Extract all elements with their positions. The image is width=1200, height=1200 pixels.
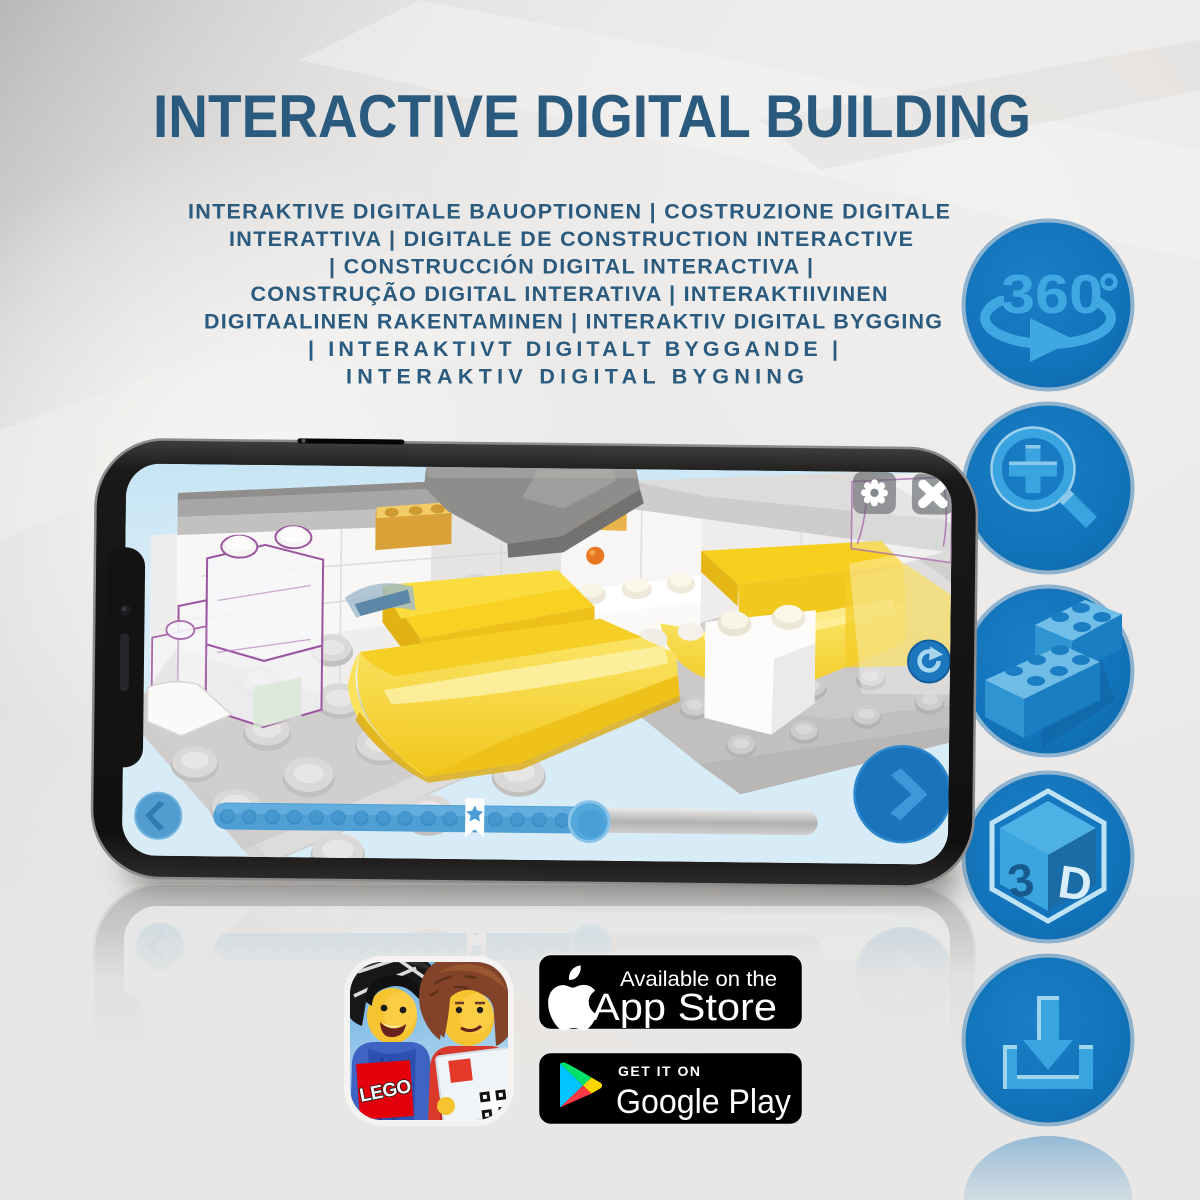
svg-text:| CONSTRUCCIÓN DIGITAL INTERAC: | CONSTRUCCIÓN DIGITAL INTERACTIVA | xyxy=(329,254,813,279)
svg-text:Google Play: Google Play xyxy=(616,1083,791,1121)
svg-text:INTERACTIVE DIGITAL BUILDING: INTERACTIVE DIGITAL BUILDING xyxy=(153,83,1031,150)
svg-text:DIGITAALINEN RAKENTAMINEN | IN: DIGITAALINEN RAKENTAMINEN | INTERAKTIV D… xyxy=(204,310,942,334)
svg-text:CONSTRUÇÃO DIGITAL INTERATIVA: CONSTRUÇÃO DIGITAL INTERATIVA | INTERAKT… xyxy=(251,281,888,306)
svg-text:INTERAKTIVE DIGITALE BAUOPTION: INTERAKTIVE DIGITALE BAUOPTIONEN | COSTR… xyxy=(188,200,950,224)
svg-text:GET IT ON: GET IT ON xyxy=(618,1063,702,1079)
svg-text:App Store: App Store xyxy=(592,987,777,1029)
svg-text:INTERATTIVA | DIGITALE DE CONS: INTERATTIVA | DIGITALE DE CONSTRUCTION I… xyxy=(229,227,913,251)
svg-text:360: 360 xyxy=(1001,263,1103,325)
